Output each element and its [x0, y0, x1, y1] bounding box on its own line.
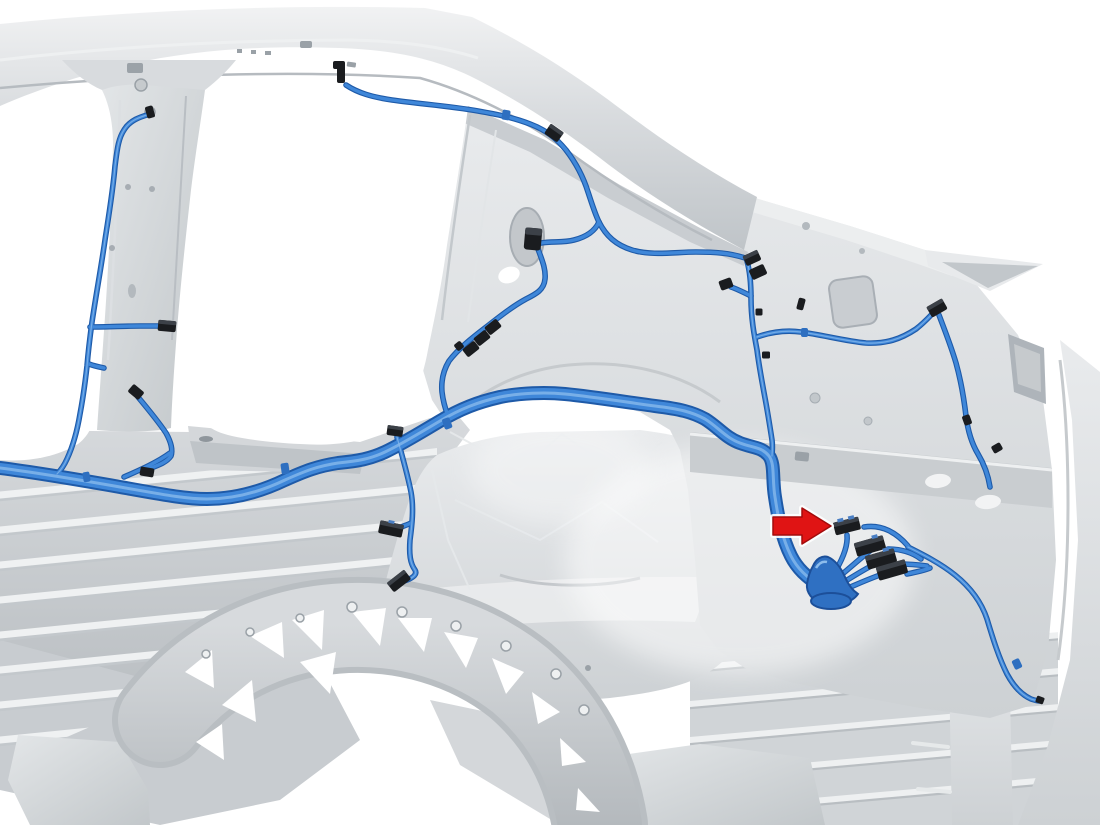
- connector: [158, 320, 177, 333]
- body-harness-illustration: [0, 0, 1100, 825]
- quarter-opening: [828, 275, 878, 329]
- front-door-opening: [0, 98, 111, 460]
- figure-canvas: [0, 0, 1100, 825]
- connector: [524, 227, 543, 250]
- connector: [756, 309, 763, 316]
- connector: [762, 352, 770, 359]
